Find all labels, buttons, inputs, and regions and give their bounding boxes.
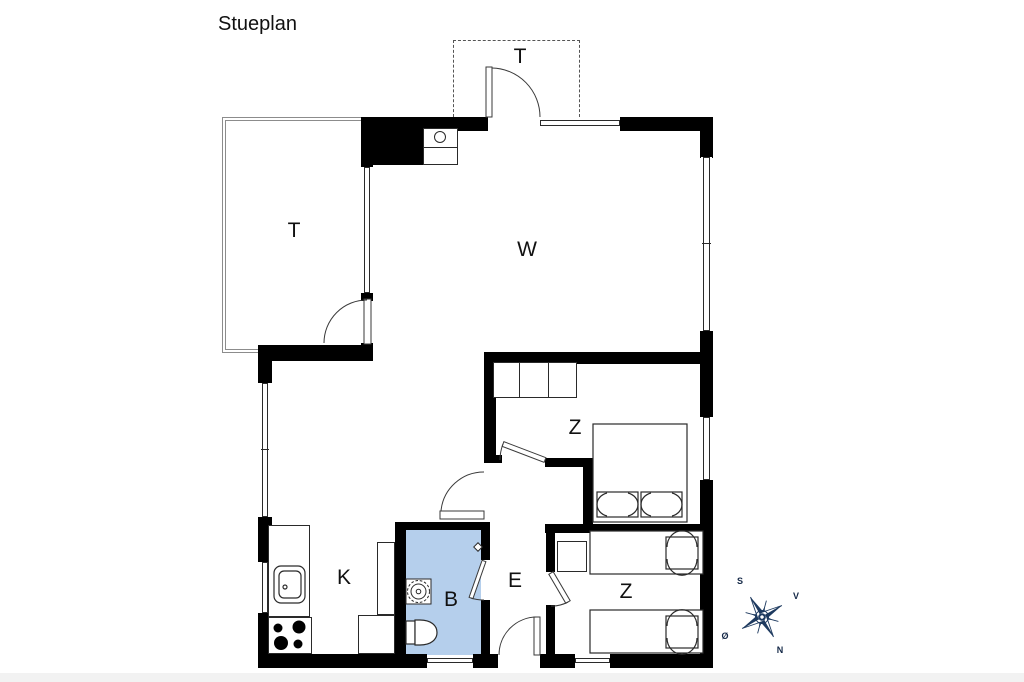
wall	[481, 600, 490, 654]
pillow-seam	[667, 531, 697, 547]
room-label-bedroom-upper: Z	[569, 416, 582, 440]
compass-label-o: Ø	[721, 631, 728, 641]
door-arc	[499, 617, 537, 655]
wall	[583, 458, 593, 533]
window	[701, 417, 712, 480]
pillow-seam	[628, 493, 638, 516]
wall	[546, 533, 555, 572]
wall	[258, 654, 427, 668]
compass-rose	[731, 586, 794, 649]
single-bed	[590, 531, 703, 576]
floor-plan: Stueplan	[0, 0, 1024, 682]
wall	[361, 293, 373, 301]
wall	[545, 524, 713, 533]
wall	[484, 455, 502, 463]
wall	[473, 654, 498, 668]
window	[575, 656, 610, 665]
wall	[610, 654, 713, 668]
door-arc	[441, 472, 484, 511]
wall	[361, 117, 373, 167]
room-label-entry: E	[508, 569, 522, 593]
room-label-terrace-left: T	[288, 219, 301, 243]
compass-label-s: S	[737, 576, 743, 586]
window	[427, 656, 473, 665]
room-label-bathroom: B	[444, 588, 458, 612]
kitchen-cabinet-tall	[377, 542, 395, 615]
pillow-seam	[667, 559, 697, 575]
page-edge	[0, 673, 1024, 682]
wall	[481, 530, 490, 560]
wall	[395, 522, 406, 654]
window	[701, 157, 712, 331]
pillow-seam	[641, 493, 651, 516]
window	[540, 118, 620, 128]
double-bed	[593, 424, 687, 522]
wall	[700, 331, 713, 417]
compass-label-n: N	[777, 645, 784, 655]
wall	[395, 522, 490, 530]
window	[362, 167, 372, 293]
room-label-kitchen: K	[337, 566, 351, 590]
wall	[361, 343, 373, 361]
kitchen-cabinet-low	[358, 615, 395, 654]
pillow-seam	[667, 610, 697, 626]
fireplace-unit	[423, 128, 458, 165]
wardrobe	[493, 362, 577, 398]
wall	[258, 361, 272, 383]
door-leaf	[440, 511, 484, 519]
kitchen-counter	[268, 525, 310, 617]
pillow-seam	[667, 638, 697, 654]
door-leaf	[549, 572, 570, 604]
wall	[540, 654, 575, 668]
pillow-seam	[672, 493, 682, 516]
wall	[700, 117, 713, 158]
room-label-terrace-top: T	[514, 45, 527, 69]
fireplace-chimney	[368, 131, 425, 165]
wall	[700, 480, 713, 668]
page-title: Stueplan	[218, 13, 297, 36]
door-leaf	[502, 442, 546, 463]
room-label-living: W	[517, 238, 537, 262]
door-leaf	[534, 617, 540, 655]
nightstand	[557, 541, 587, 572]
compass-label-v: V	[793, 591, 799, 601]
wall	[546, 605, 555, 654]
single-bed	[590, 610, 703, 655]
pillow-seam	[597, 493, 607, 516]
window	[260, 383, 270, 517]
wall	[258, 345, 373, 361]
room-label-bedroom-lower: Z	[620, 580, 633, 604]
stove	[268, 617, 312, 654]
